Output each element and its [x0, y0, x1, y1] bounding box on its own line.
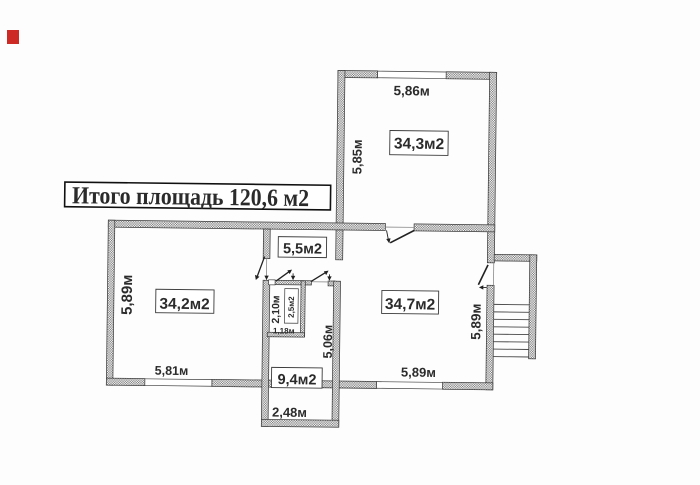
svg-text:34,3м2: 34,3м2 [394, 135, 444, 153]
svg-text:1,18м: 1,18м [273, 326, 295, 335]
svg-text:5,06м: 5,06м [321, 325, 335, 359]
svg-text:34,7м2: 34,7м2 [385, 296, 435, 314]
svg-text:5,89м: 5,89м [468, 304, 483, 340]
svg-text:34,2м2: 34,2м2 [159, 296, 209, 314]
svg-text:2,5м2: 2,5м2 [287, 296, 296, 318]
svg-text:5,5м2: 5,5м2 [283, 241, 322, 257]
svg-text:Итого площадь 120,6 м2: Итого площадь 120,6 м2 [72, 182, 309, 212]
svg-text:2,48м: 2,48м [272, 405, 307, 420]
svg-text:2,10м: 2,10м [270, 295, 282, 324]
svg-text:5,89м: 5,89м [119, 275, 136, 316]
svg-text:9,4м2: 9,4м2 [277, 372, 316, 388]
svg-text:5,81м: 5,81м [155, 364, 189, 378]
svg-text:5,85м: 5,85м [349, 139, 364, 174]
svg-text:5,89м: 5,89м [401, 365, 436, 380]
svg-text:5,86м: 5,86м [393, 83, 429, 98]
